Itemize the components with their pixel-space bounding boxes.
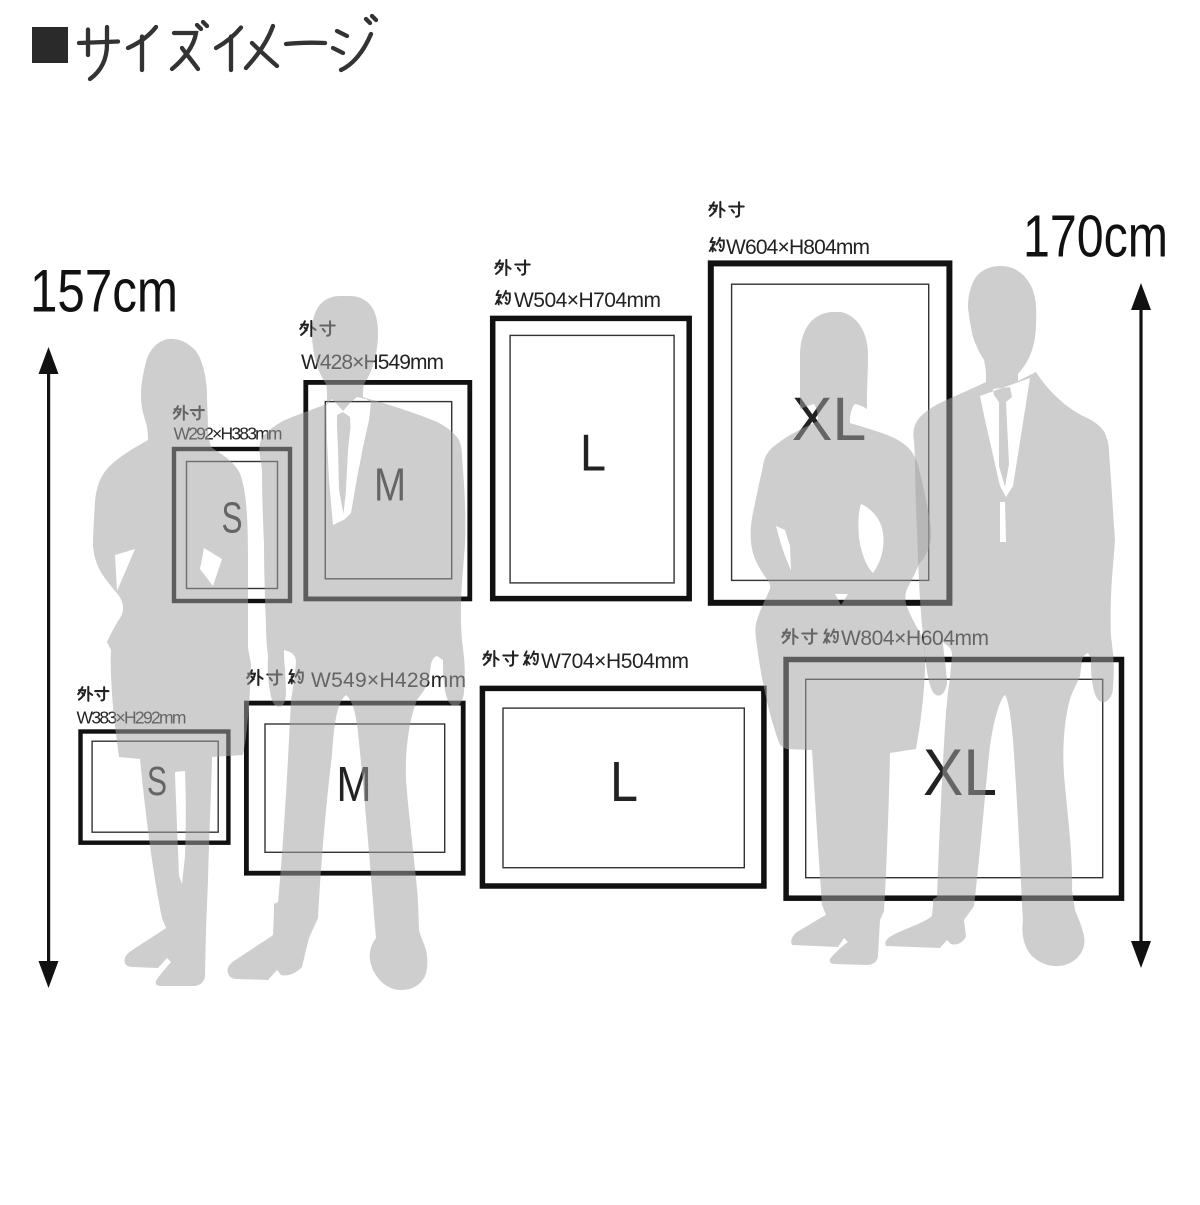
svg-text:L: L [610, 750, 638, 814]
svg-text:W704×H504mm: W704×H504mm [541, 650, 689, 673]
svg-text:W604×H804mm: W604×H804mm [726, 236, 870, 259]
svg-text:L: L [580, 425, 606, 483]
svg-text:157cm: 157cm [30, 258, 178, 325]
svg-text:170cm: 170cm [1023, 204, 1168, 270]
svg-text:W504×H704mm: W504×H704mm [514, 289, 661, 312]
